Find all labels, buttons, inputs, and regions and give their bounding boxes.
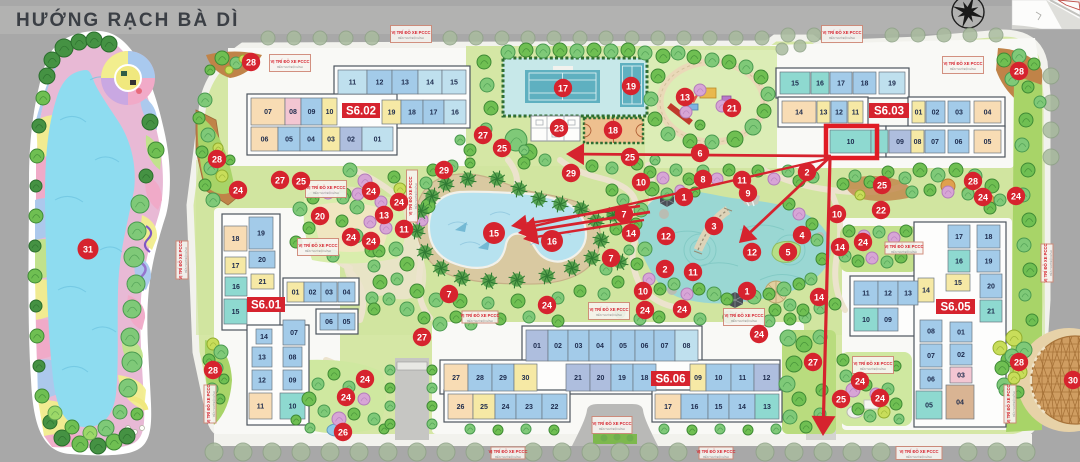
svg-text:23: 23 [554, 124, 564, 134]
svg-text:14: 14 [814, 293, 824, 303]
svg-text:06: 06 [955, 139, 963, 146]
svg-text:24: 24 [360, 375, 370, 385]
svg-text:05: 05 [619, 343, 627, 350]
svg-text:03: 03 [955, 110, 963, 117]
svg-text:11: 11 [257, 404, 265, 411]
svg-text:01: 01 [292, 290, 300, 297]
svg-text:06: 06 [927, 377, 935, 384]
svg-text:10: 10 [326, 109, 334, 116]
svg-text:19: 19 [626, 82, 636, 92]
svg-text:25: 25 [296, 177, 306, 187]
svg-text:S6.05: S6.05 [940, 302, 971, 314]
svg-text:2: 2 [662, 265, 667, 275]
svg-text:15: 15 [232, 309, 240, 316]
svg-text:07: 07 [927, 353, 935, 360]
svg-text:11: 11 [862, 291, 870, 298]
svg-text:22: 22 [876, 206, 886, 216]
svg-text:10: 10 [862, 317, 870, 324]
svg-text:12: 12 [376, 80, 384, 87]
svg-text:14: 14 [922, 288, 930, 295]
svg-text:3: 3 [711, 222, 716, 232]
svg-text:09: 09 [896, 139, 904, 146]
svg-text:23: 23 [525, 404, 533, 411]
svg-text:26: 26 [457, 404, 465, 411]
svg-text:12: 12 [661, 232, 671, 242]
svg-text:20: 20 [597, 375, 605, 382]
svg-text:09: 09 [694, 375, 702, 382]
svg-text:12: 12 [884, 291, 892, 298]
svg-text:05: 05 [984, 139, 992, 146]
svg-text:11: 11 [737, 176, 747, 186]
svg-text:13: 13 [258, 355, 266, 362]
svg-text:16: 16 [691, 404, 699, 411]
svg-text:18: 18 [232, 236, 240, 243]
svg-text:VỊ TRÍ ĐỖ XE PCCC: VỊ TRÍ ĐỖ XE PCCC [943, 61, 982, 66]
svg-text:09: 09 [884, 317, 892, 324]
svg-text:S6.01: S6.01 [251, 300, 282, 312]
svg-text:14: 14 [626, 229, 636, 239]
svg-text:09: 09 [289, 378, 297, 385]
svg-text:01: 01 [533, 343, 541, 350]
svg-text:01: 01 [374, 137, 382, 144]
svg-text:06: 06 [641, 343, 649, 350]
svg-text:12: 12 [258, 378, 266, 385]
svg-text:VỊ TRÍ ĐỖ XE PCCC: VỊ TRÍ ĐỖ XE PCCC [206, 384, 211, 423]
svg-text:15: 15 [715, 404, 723, 411]
svg-text:30: 30 [522, 375, 530, 382]
svg-text:08: 08 [289, 355, 297, 362]
svg-text:24: 24 [754, 330, 764, 340]
svg-text:S6.03: S6.03 [874, 106, 904, 118]
svg-text:19: 19 [618, 375, 626, 382]
svg-text:VỊ TRÍ ĐỖ XE PCCC: VỊ TRÍ ĐỖ XE PCCC [822, 30, 861, 35]
svg-text:11: 11 [852, 110, 860, 117]
svg-text:10: 10 [832, 210, 842, 220]
svg-text:28: 28 [968, 177, 978, 187]
svg-text:04: 04 [307, 137, 315, 144]
svg-text:06: 06 [325, 319, 333, 326]
svg-text:13: 13 [820, 110, 828, 117]
svg-text:8: 8 [700, 175, 705, 185]
svg-text:26: 26 [338, 428, 348, 438]
svg-text:13: 13 [379, 211, 389, 221]
svg-text:VỊ TRÍ ĐỖ XE PCCC: VỊ TRÍ ĐỖ XE PCCC [488, 449, 527, 454]
svg-text:22: 22 [551, 404, 559, 411]
svg-text:04: 04 [984, 110, 992, 117]
svg-text:15: 15 [954, 280, 962, 287]
svg-text:31: 31 [83, 245, 93, 255]
svg-text:08: 08 [289, 109, 297, 116]
svg-text:27: 27 [275, 176, 285, 186]
svg-text:18: 18 [408, 110, 416, 117]
svg-text:17: 17 [232, 263, 240, 270]
svg-text:03: 03 [575, 343, 583, 350]
svg-text:21: 21 [727, 104, 737, 114]
svg-text:5: 5 [785, 248, 790, 258]
svg-text:10: 10 [847, 139, 855, 146]
svg-text:14: 14 [795, 110, 803, 117]
svg-text:24: 24 [978, 193, 988, 203]
svg-text:7: 7 [608, 254, 613, 264]
svg-text:13: 13 [680, 93, 690, 103]
svg-text:06: 06 [261, 137, 269, 144]
svg-text:17: 17 [430, 110, 438, 117]
svg-text:09: 09 [308, 109, 316, 116]
svg-text:28: 28 [476, 375, 484, 382]
svg-text:16: 16 [451, 110, 459, 117]
svg-text:VỊ TRÍ ĐỖ XE PCCC: VỊ TRÍ ĐỖ XE PCCC [589, 307, 628, 312]
svg-text:S6.02: S6.02 [346, 106, 376, 118]
svg-text:VỊ TRÍ ĐỖ XE PCCC: VỊ TRÍ ĐỖ XE PCCC [298, 243, 337, 248]
svg-text:07: 07 [661, 343, 669, 350]
svg-text:20: 20 [258, 257, 266, 264]
svg-text:01: 01 [957, 330, 965, 337]
svg-text:24: 24 [1011, 192, 1021, 202]
svg-text:14: 14 [260, 334, 268, 341]
svg-text:15: 15 [489, 229, 499, 239]
svg-text:25: 25 [625, 153, 635, 163]
svg-text:11: 11 [739, 375, 747, 382]
svg-text:12: 12 [747, 248, 757, 258]
svg-text:VỊ TRÍ ĐỖ XE PCCC: VỊ TRÍ ĐỖ XE PCCC [408, 176, 413, 215]
svg-text:24: 24 [341, 393, 351, 403]
svg-text:28: 28 [1014, 358, 1024, 368]
svg-text:16: 16 [955, 259, 963, 266]
svg-text:29: 29 [439, 166, 449, 176]
svg-text:7: 7 [621, 210, 626, 220]
svg-text:08: 08 [683, 343, 691, 350]
svg-text:04: 04 [343, 290, 351, 297]
svg-text:02: 02 [957, 352, 965, 359]
svg-text:16: 16 [816, 81, 824, 88]
svg-text:05: 05 [925, 403, 933, 410]
svg-text:2: 2 [804, 168, 809, 178]
svg-text:08: 08 [927, 329, 935, 336]
svg-text:18: 18 [861, 81, 869, 88]
svg-text:21: 21 [574, 375, 582, 382]
svg-text:VỊ TRÍ ĐỖ XE PCCC: VỊ TRÍ ĐỖ XE PCCC [1043, 243, 1048, 282]
svg-text:10: 10 [636, 178, 646, 188]
svg-text:VỊ TRÍ ĐỖ XE PCCC: VỊ TRÍ ĐỖ XE PCCC [460, 313, 499, 318]
svg-text:04: 04 [956, 400, 964, 407]
svg-text:14: 14 [738, 404, 746, 411]
svg-text:27: 27 [478, 131, 488, 141]
svg-text:28: 28 [208, 366, 218, 376]
svg-text:4: 4 [799, 231, 804, 241]
svg-text:VỊ TRÍ ĐỖ XE PCCC: VỊ TRÍ ĐỖ XE PCCC [724, 313, 763, 318]
svg-text:17: 17 [558, 84, 568, 94]
svg-text:1: 1 [744, 287, 749, 297]
svg-text:03: 03 [325, 290, 333, 297]
svg-text:12: 12 [835, 110, 843, 117]
svg-text:17: 17 [955, 234, 963, 241]
svg-text:14: 14 [426, 80, 434, 87]
svg-text:02: 02 [309, 290, 317, 297]
svg-text:20: 20 [315, 212, 325, 222]
svg-text:02: 02 [932, 110, 940, 117]
svg-text:24: 24 [394, 198, 404, 208]
svg-text:27: 27 [417, 333, 427, 343]
svg-text:24: 24 [502, 404, 510, 411]
svg-text:25: 25 [497, 144, 507, 154]
svg-text:15: 15 [450, 80, 458, 87]
svg-text:24: 24 [855, 377, 865, 387]
svg-text:19: 19 [257, 231, 265, 238]
svg-text:25: 25 [877, 181, 887, 191]
svg-text:28: 28 [212, 155, 222, 165]
svg-text:VỊ TRÍ ĐỖ XE PCCC: VỊ TRÍ ĐỖ XE PCCC [1006, 384, 1011, 423]
svg-text:14: 14 [835, 243, 845, 253]
svg-text:16: 16 [547, 237, 557, 247]
svg-text:07: 07 [931, 139, 939, 146]
svg-text:27: 27 [808, 358, 818, 368]
svg-text:13: 13 [904, 291, 912, 298]
svg-text:11: 11 [399, 225, 409, 235]
svg-text:HƯỚNG RẠCH BÀ DÌ: HƯỚNG RẠCH BÀ DÌ [16, 9, 239, 31]
svg-text:7: 7 [446, 290, 451, 300]
svg-text:07: 07 [290, 330, 298, 337]
svg-text:21: 21 [987, 309, 995, 316]
svg-text:24: 24 [366, 237, 376, 247]
svg-text:VỊ TRÍ ĐỖ XE PCCC: VỊ TRÍ ĐỖ XE PCCC [853, 361, 892, 366]
svg-text:28: 28 [246, 58, 256, 68]
svg-text:28: 28 [1014, 67, 1024, 77]
svg-text:13: 13 [401, 80, 409, 87]
svg-text:18: 18 [641, 375, 649, 382]
svg-text:19: 19 [985, 259, 993, 266]
svg-text:VỊ TRÍ ĐỖ XE PCCC: VỊ TRÍ ĐỖ XE PCCC [270, 59, 309, 64]
svg-text:24: 24 [858, 238, 868, 248]
svg-text:VỊ TRÍ ĐỖ XE PCCC: VỊ TRÍ ĐỖ XE PCCC [306, 185, 345, 190]
svg-text:24: 24 [346, 233, 356, 243]
svg-text:16: 16 [232, 284, 240, 291]
svg-text:VỊ TRÍ ĐỖ XE PCCC: VỊ TRÍ ĐỖ XE PCCC [391, 30, 430, 35]
svg-text:03: 03 [957, 373, 965, 380]
svg-text:10: 10 [715, 375, 723, 382]
svg-text:01: 01 [915, 110, 923, 117]
svg-text:VỊ TRÍ ĐỖ XE PCCC: VỊ TRÍ ĐỖ XE PCCC [899, 449, 938, 454]
svg-text:11: 11 [688, 268, 698, 278]
svg-text:21: 21 [259, 279, 267, 286]
svg-text:VỊ TRÍ ĐỖ XE PCCC: VỊ TRÍ ĐỖ XE PCCC [592, 421, 631, 426]
svg-text:29: 29 [566, 169, 576, 179]
svg-text:VỊ TRÍ ĐỖ XE PCCC: VỊ TRÍ ĐỖ XE PCCC [178, 240, 183, 279]
svg-text:17: 17 [664, 404, 672, 411]
svg-text:27: 27 [452, 375, 460, 382]
svg-text:24: 24 [640, 306, 650, 316]
svg-text:13: 13 [763, 404, 771, 411]
svg-text:05: 05 [285, 137, 293, 144]
svg-text:03: 03 [327, 137, 335, 144]
svg-text:15: 15 [791, 81, 799, 88]
svg-text:18: 18 [985, 234, 993, 241]
svg-text:19: 19 [888, 81, 896, 88]
svg-text:20: 20 [987, 284, 995, 291]
svg-text:24: 24 [677, 305, 687, 315]
svg-text:30: 30 [1068, 376, 1078, 386]
svg-text:17: 17 [837, 81, 845, 88]
svg-text:24: 24 [875, 394, 885, 404]
svg-text:02: 02 [347, 137, 355, 144]
svg-text:04: 04 [596, 343, 604, 350]
svg-text:VỊ TRÍ ĐỖ XE PCCC: VỊ TRÍ ĐỖ XE PCCC [884, 244, 923, 249]
svg-text:02: 02 [554, 343, 562, 350]
svg-text:12: 12 [763, 375, 771, 382]
svg-text:07: 07 [264, 109, 272, 116]
svg-text:19: 19 [388, 110, 396, 117]
svg-text:25: 25 [480, 404, 488, 411]
svg-text:05: 05 [343, 319, 351, 326]
svg-text:11: 11 [349, 80, 357, 87]
svg-text:08: 08 [914, 139, 922, 146]
svg-text:6: 6 [697, 149, 702, 159]
svg-text:VỊ TRÍ ĐỖ XE PCCC: VỊ TRÍ ĐỖ XE PCCC [696, 449, 735, 454]
svg-text:24: 24 [233, 186, 243, 196]
svg-text:25: 25 [836, 395, 846, 405]
svg-text:29: 29 [499, 375, 507, 382]
svg-text:1: 1 [681, 193, 686, 203]
svg-text:24: 24 [542, 301, 552, 311]
svg-text:10: 10 [638, 287, 648, 297]
svg-text:S6.06: S6.06 [655, 374, 685, 386]
svg-text:10: 10 [289, 404, 297, 411]
svg-text:9: 9 [745, 189, 750, 199]
svg-text:18: 18 [608, 126, 618, 136]
svg-text:24: 24 [366, 187, 376, 197]
